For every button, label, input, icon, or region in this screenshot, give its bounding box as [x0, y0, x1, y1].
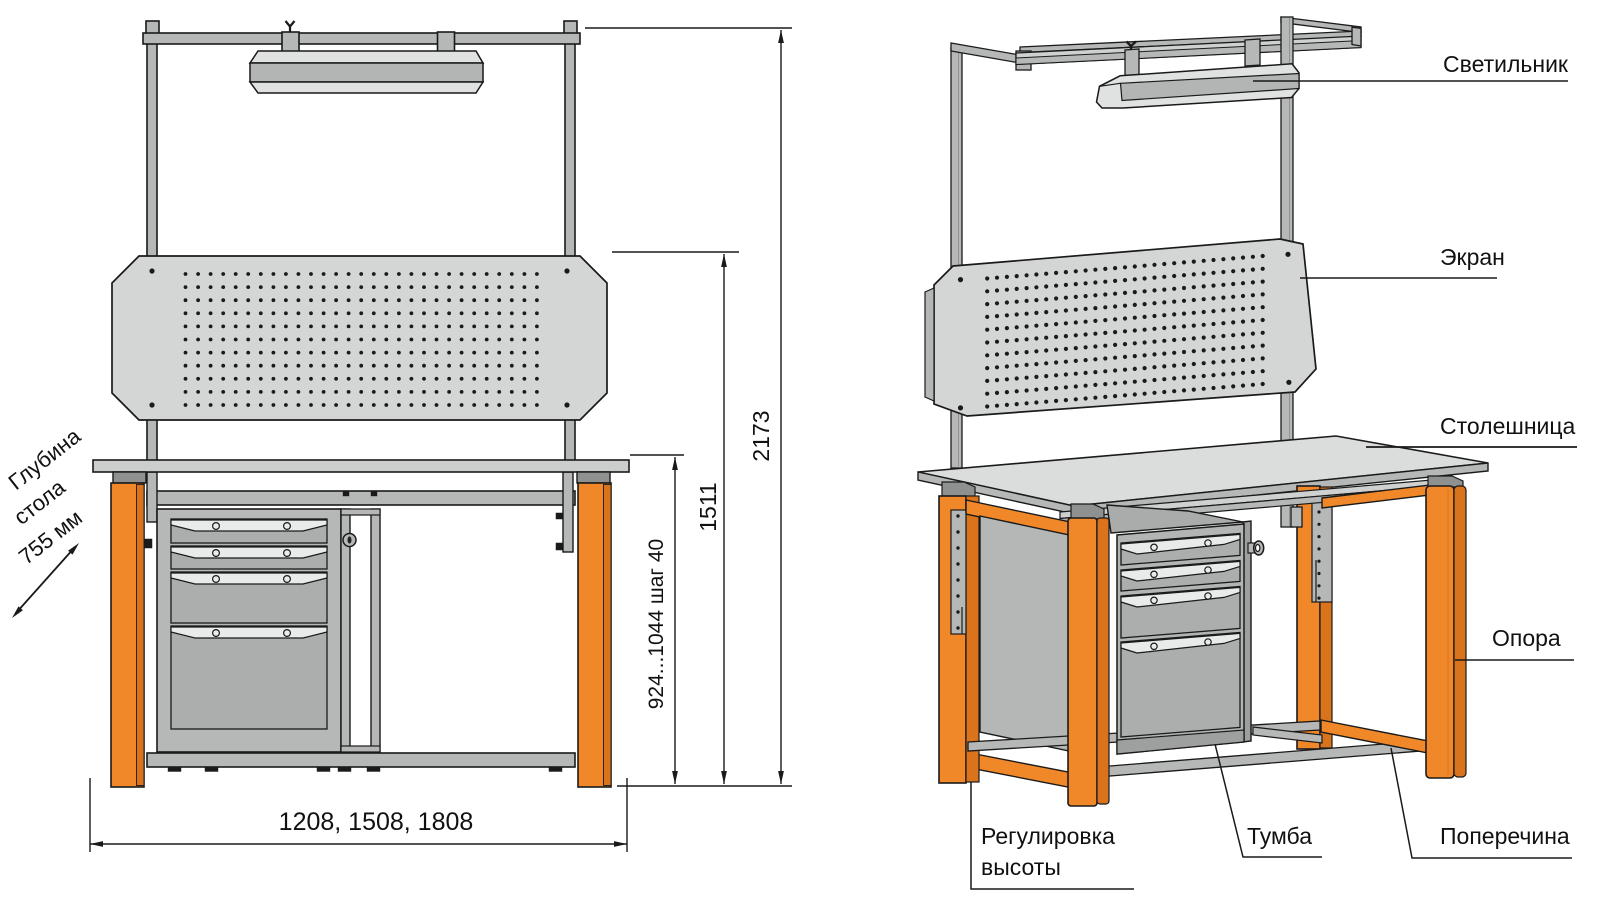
svg-text:высоты: высоты — [981, 854, 1061, 880]
svg-text:Столешница: Столешница — [1440, 413, 1576, 439]
svg-text:Светильник: Светильник — [1443, 51, 1569, 77]
svg-text:Регулировка: Регулировка — [981, 823, 1115, 849]
svg-text:Экран: Экран — [1440, 244, 1505, 270]
svg-text:Поперечина: Поперечина — [1440, 823, 1570, 849]
svg-text:1208, 1508, 1808: 1208, 1508, 1808 — [279, 808, 474, 836]
svg-text:1511: 1511 — [695, 482, 721, 531]
svg-text:Опора: Опора — [1492, 625, 1561, 651]
svg-text:Тумба: Тумба — [1247, 823, 1312, 849]
svg-text:2173: 2173 — [748, 410, 774, 461]
svg-text:924...1044 шаг 40: 924...1044 шаг 40 — [645, 539, 668, 709]
